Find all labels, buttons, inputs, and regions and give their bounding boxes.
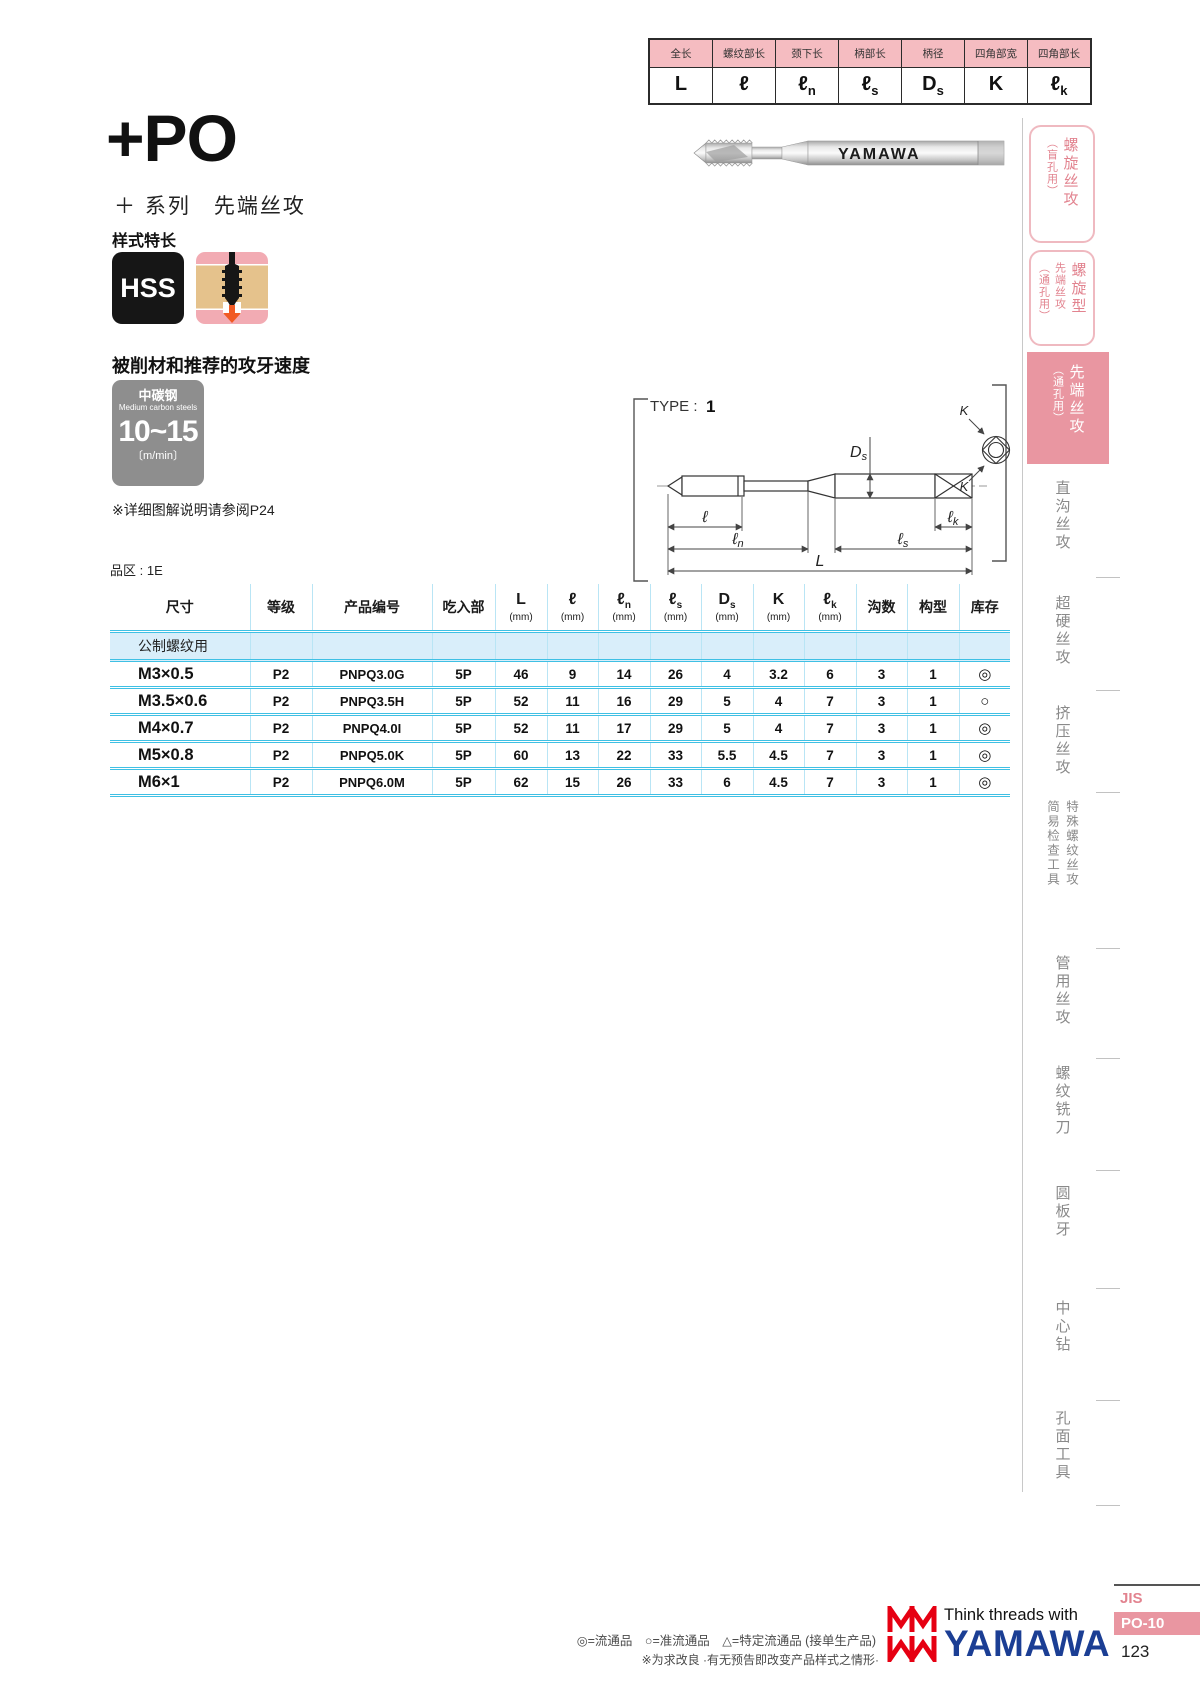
hss-label: HSS (120, 273, 176, 304)
sidebar-item-label: 孔面工具 (1052, 1410, 1073, 1482)
through-hole-icon-art (196, 252, 268, 324)
cell-L: 60 (495, 742, 547, 769)
dim-header: 全长 (649, 39, 713, 68)
sidebar-tab-label: 螺旋型 (1068, 262, 1089, 316)
sidebar-item-carbide: 超硬丝攻 (1034, 595, 1090, 685)
sidebar-tab-point-spiral-type: （通孔用） 先端丝攻 螺旋型 (1029, 250, 1095, 346)
cell-chamfer: 5P (432, 742, 495, 769)
cell-grade: P2 (250, 742, 312, 769)
sidebar-tab-qualifier: 先端丝攻 (1052, 262, 1068, 310)
footer-rule (1114, 1584, 1200, 1586)
cell-lk: 7 (804, 688, 856, 715)
section-cell (312, 632, 432, 661)
col-header-grade: 等级 (250, 584, 312, 632)
cell-ln: 26 (598, 769, 650, 796)
cell-stock: ◎ (959, 715, 1010, 742)
col-header-L: L(mm) (495, 584, 547, 632)
cell-K: 4.5 (753, 742, 804, 769)
sidebar-item-label: 中心钻 (1052, 1300, 1073, 1354)
dim-symbol-sub: s (871, 83, 878, 98)
sidebar-section-tick (1096, 1058, 1120, 1059)
cell-flutes: 3 (856, 715, 907, 742)
col-header-stock: 库存 (959, 584, 1010, 632)
section-cell (856, 632, 907, 661)
cell-lk: 7 (804, 742, 856, 769)
k-label-top: K (960, 403, 970, 418)
sidebar-item-round-dies: 圆板牙 (1034, 1185, 1090, 1255)
tap-outline (668, 474, 972, 498)
cell-l: 9 (547, 661, 598, 688)
k-label-bottom: K (960, 479, 970, 494)
cell-size: M3.5×0.6 (110, 688, 250, 715)
sidebar-section-tick (1096, 577, 1120, 578)
cell-lk: 7 (804, 715, 856, 742)
spec-table-body: M3×0.5 P2 PNPQ3.0G 5P 46 9 14 26 4 3.2 6… (110, 661, 1010, 796)
type-value: 1 (706, 397, 715, 416)
cell-chamfer: 5P (432, 661, 495, 688)
cell-ls: 29 (650, 715, 701, 742)
spec-table-row: M3×0.5 P2 PNPQ3.0G 5P 46 9 14 26 4 3.2 6… (110, 661, 1010, 688)
section-row-metric: 公制螺纹用 (110, 632, 1010, 661)
ds-label: Ds (850, 444, 868, 463)
material-name-cn: 中碳钢 (112, 389, 204, 403)
sidebar-item-label: 特殊螺纹丝攻 (1062, 800, 1081, 887)
dim-symbol: Ds (902, 68, 965, 105)
sidebar-tab-qualifier: （通孔用） (1050, 364, 1066, 424)
cell-ln: 17 (598, 715, 650, 742)
cell-lk: 7 (804, 769, 856, 796)
sidebar-item-special-thread: 简易检查工具 特殊螺纹丝攻 (1034, 800, 1090, 945)
dim-symbol: ℓ (713, 68, 776, 105)
sidebar-tab-label: 先端丝攻 (1066, 364, 1087, 436)
sidebar-item-forming: 挤压丝攻 (1034, 705, 1090, 795)
cell-size: M3×0.5 (110, 661, 250, 688)
section-cell (701, 632, 753, 661)
cell-ls: 33 (650, 742, 701, 769)
jis-label: JIS (1120, 1590, 1143, 1607)
cell-L: 52 (495, 688, 547, 715)
cell-ln: 16 (598, 688, 650, 715)
material-name-en: Medium carbon steels (112, 404, 204, 413)
dim-ln-label: ℓn (731, 531, 743, 550)
hss-material-icon: HSS (112, 252, 184, 324)
sidebar-section-tick (1096, 1400, 1120, 1401)
cell-l: 11 (547, 688, 598, 715)
section-cell (650, 632, 701, 661)
dim-symbol-main: ℓ (861, 73, 871, 95)
sidebar-tab-point-through-active: （通孔用） 先端丝攻 (1027, 352, 1109, 464)
sidebar-item-label: 圆板牙 (1052, 1185, 1073, 1239)
sidebar-section-tick (1096, 690, 1120, 691)
cell-l: 11 (547, 715, 598, 742)
type-label: TYPE : (650, 398, 698, 415)
cell-flutes: 3 (856, 742, 907, 769)
series-code-title: +PO (106, 100, 237, 176)
section-cell (250, 632, 312, 661)
cell-chamfer: 5P (432, 688, 495, 715)
speed-value: 10~15 (112, 415, 204, 448)
cell-part-no: PNPQ3.5H (312, 688, 432, 715)
series-subtitle: ＋ 系列 先端丝攻 (114, 190, 306, 220)
cell-l: 15 (547, 769, 598, 796)
cell-L: 62 (495, 769, 547, 796)
cell-part-no: PNPQ3.0G (312, 661, 432, 688)
dim-L-label: L (816, 553, 825, 570)
right-bracket (992, 385, 1006, 561)
cell-Ds: 4 (701, 661, 753, 688)
col-header-part-no: 产品编号 (312, 584, 432, 632)
spec-table: 尺寸 等级 产品编号 吃入部 L(mm) ℓ(mm) ℓn(mm) ℓs(mm)… (110, 584, 1010, 797)
section-label: 公制螺纹用 (110, 632, 250, 661)
cell-part-no: PNPQ4.0I (312, 715, 432, 742)
cell-part-no: PNPQ5.0K (312, 742, 432, 769)
section-cell (804, 632, 856, 661)
cell-K: 4.5 (753, 769, 804, 796)
speed-box: 中碳钢 Medium carbon steels 10~15 〔m/min〕 (112, 380, 204, 486)
sidebar-section-tick (1096, 1170, 1120, 1171)
cell-size: M4×0.7 (110, 715, 250, 742)
cell-Ds: 6 (701, 769, 753, 796)
cell-flutes: 3 (856, 661, 907, 688)
style-feature-label: 样式特长 (112, 227, 176, 251)
catalog-page: 全长 螺纹部长 颈下长 柄部长 柄径 四角部宽 四角部长 L ℓ ℓn ℓs D… (0, 0, 1200, 1697)
cell-chamfer: 5P (432, 769, 495, 796)
speed-unit: 〔m/min〕 (112, 450, 204, 462)
cell-form: 1 (907, 742, 959, 769)
cell-size: M5×0.8 (110, 742, 250, 769)
col-header-Ds: Ds(mm) (701, 584, 753, 632)
dim-header: 四角部宽 (965, 39, 1028, 68)
cell-ln: 14 (598, 661, 650, 688)
sidebar-item-label: 螺纹铣刀 (1052, 1065, 1073, 1137)
cell-flutes: 3 (856, 688, 907, 715)
cell-part-no: PNPQ6.0M (312, 769, 432, 796)
cell-L: 46 (495, 661, 547, 688)
sidebar-item-center-drills: 中心钻 (1034, 1300, 1090, 1370)
dim-symbol-main: D (922, 73, 936, 95)
sidebar-item-label: 挤压丝攻 (1052, 705, 1073, 777)
dim-symbol-main: ℓ (739, 73, 749, 95)
cell-ls: 33 (650, 769, 701, 796)
sidebar-tab-spiral-blind: （盲孔用） 螺旋丝攻 (1029, 125, 1095, 243)
brand-lockup: Think threads with YAMAWA (886, 1606, 1110, 1667)
section-cell (959, 632, 1010, 661)
brand-text-block: Think threads with YAMAWA (944, 1606, 1110, 1665)
dim-symbol-main: ℓ (798, 73, 808, 95)
col-header-ls: ℓs(mm) (650, 584, 701, 632)
tap-product-photo: YAMAWA (686, 112, 1016, 199)
section-cell (753, 632, 804, 661)
speed-heading: 被削材和推荐的攻牙速度 (112, 352, 310, 378)
sidebar-section-tick (1096, 1288, 1120, 1289)
cell-grade: P2 (250, 769, 312, 796)
cell-l: 13 (547, 742, 598, 769)
dim-symbol-main: K (989, 73, 1003, 95)
sidebar-section-tick (1096, 792, 1120, 793)
cell-stock: ◎ (959, 769, 1010, 796)
section-cell (598, 632, 650, 661)
spec-table-row: M3.5×0.6 P2 PNPQ3.5H 5P 52 11 16 29 5 4 … (110, 688, 1010, 715)
dim-header: 螺纹部长 (713, 39, 776, 68)
cell-K: 3.2 (753, 661, 804, 688)
dim-ls-label: ℓs (897, 531, 909, 550)
dim-symbol: ℓs (839, 68, 902, 105)
cell-form: 1 (907, 688, 959, 715)
dim-symbol: ℓn (776, 68, 839, 105)
col-header-chamfer: 吃入部 (432, 584, 495, 632)
cell-grade: P2 (250, 715, 312, 742)
sidebar-item-thread-mills: 螺纹铣刀 (1034, 1065, 1090, 1155)
cell-grade: P2 (250, 661, 312, 688)
cell-grade: P2 (250, 688, 312, 715)
sidebar-tab-label: 螺旋丝攻 (1060, 137, 1081, 209)
cell-ls: 29 (650, 688, 701, 715)
cell-stock: ◎ (959, 742, 1010, 769)
cell-form: 1 (907, 661, 959, 688)
left-bracket (634, 399, 648, 581)
cell-stock: ○ (959, 688, 1010, 715)
cell-K: 4 (753, 715, 804, 742)
spec-table-header-row: 尺寸 等级 产品编号 吃入部 L(mm) ℓ(mm) ℓn(mm) ℓs(mm)… (110, 584, 1010, 632)
cell-form: 1 (907, 769, 959, 796)
dim-header: 柄部长 (839, 39, 902, 68)
cell-form: 1 (907, 715, 959, 742)
dim-lk-label: ℓk (947, 509, 959, 528)
cell-lk: 6 (804, 661, 856, 688)
dim-symbol-sub: n (808, 83, 816, 98)
page-code-badge: PO-10 (1114, 1612, 1200, 1635)
brand-name: YAMAWA (944, 1623, 1110, 1665)
dim-header: 颈下长 (776, 39, 839, 68)
section-cell (432, 632, 495, 661)
cell-ln: 22 (598, 742, 650, 769)
sidebar-tab-qualifier: （通孔用） (1036, 262, 1052, 322)
reference-note: ※详细图解说明请参阅P24 (112, 500, 275, 520)
dim-symbol-sub: s (937, 83, 944, 98)
cell-chamfer: 5P (432, 715, 495, 742)
col-header-ln: ℓn(mm) (598, 584, 650, 632)
through-hole-icon (196, 252, 268, 329)
disclaimer-note: ※为求改良 ·有无预告即改变产品样式之情形· (0, 1651, 879, 1668)
sidebar-item-hole-tools: 孔面工具 (1034, 1410, 1090, 1500)
page-number: 123 (1121, 1642, 1149, 1662)
dim-symbol-main: L (675, 73, 687, 95)
spec-table-row: M6×1 P2 PNPQ6.0M 5P 62 15 26 33 6 4.5 7 … (110, 769, 1010, 796)
cell-L: 52 (495, 715, 547, 742)
product-zone-label: 品区 : 1E (110, 560, 163, 579)
section-cell (907, 632, 959, 661)
sidebar-item-label: 直沟丝攻 (1052, 480, 1073, 552)
cell-flutes: 3 (856, 769, 907, 796)
dim-symbol: L (649, 68, 713, 105)
cell-Ds: 5 (701, 688, 753, 715)
spec-table-row: M5×0.8 P2 PNPQ5.0K 5P 60 13 22 33 5.5 4.… (110, 742, 1010, 769)
sidebar-divider-line (1022, 118, 1023, 1492)
type-drawing: TYPE : 1 Ds (572, 375, 1017, 590)
col-header-l: ℓ(mm) (547, 584, 598, 632)
cell-Ds: 5.5 (701, 742, 753, 769)
dim-header: 柄径 (902, 39, 965, 68)
section-cell (495, 632, 547, 661)
col-header-size: 尺寸 (110, 584, 250, 632)
dim-l-label: ℓ (701, 509, 708, 526)
sidebar-item-label: 简易检查工具 (1043, 800, 1062, 887)
sidebar-section-tick (1096, 1505, 1120, 1506)
dim-symbol: K (965, 68, 1028, 105)
section-cell (547, 632, 598, 661)
sidebar-section-tick (1096, 948, 1120, 949)
sidebar-item-label: 管用丝攻 (1052, 955, 1073, 1027)
col-header-K: K(mm) (753, 584, 804, 632)
sidebar-item-label: 超硬丝攻 (1052, 595, 1073, 667)
yamawa-logo-icon (886, 1606, 938, 1667)
col-header-form: 构型 (907, 584, 959, 632)
col-header-flutes: 沟数 (856, 584, 907, 632)
cell-stock: ◎ (959, 661, 1010, 688)
spec-table-row: M4×0.7 P2 PNPQ4.0I 5P 52 11 17 29 5 4 7 … (110, 715, 1010, 742)
stock-legend: ◎=流通品 ○=准流通品 △=特定流通品 (接单生产品) (0, 1630, 876, 1649)
cell-Ds: 5 (701, 715, 753, 742)
col-header-lk: ℓk(mm) (804, 584, 856, 632)
cell-K: 4 (753, 688, 804, 715)
cell-ls: 26 (650, 661, 701, 688)
edge-index-sidebar: （盲孔用） 螺旋丝攻 （通孔用） 先端丝攻 螺旋型 （通孔用） 先端丝攻 直沟丝… (1022, 0, 1200, 1697)
cell-size: M6×1 (110, 769, 250, 796)
sidebar-item-straight-flute: 直沟丝攻 (1034, 480, 1090, 570)
sidebar-item-pipe-taps: 管用丝攻 (1034, 955, 1090, 1045)
tap-brand-text: YAMAWA (838, 146, 921, 163)
sidebar-tab-qualifier: （盲孔用） (1044, 137, 1060, 197)
